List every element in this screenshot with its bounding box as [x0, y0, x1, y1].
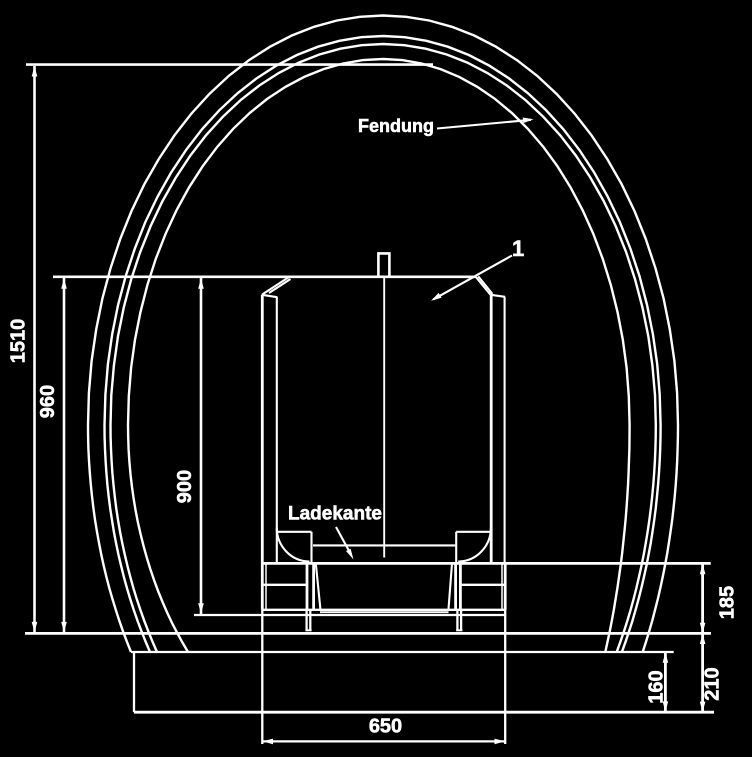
svg-text:1510: 1510	[8, 319, 30, 364]
svg-text:650: 650	[369, 716, 402, 738]
svg-text:1: 1	[512, 236, 524, 261]
svg-text:960: 960	[37, 385, 59, 418]
svg-text:160: 160	[646, 670, 668, 703]
svg-text:900: 900	[174, 470, 196, 503]
svg-text:210: 210	[702, 667, 724, 700]
svg-text:185: 185	[717, 586, 739, 619]
svg-text:Ladekante: Ladekante	[288, 504, 382, 525]
svg-text:Fendung: Fendung	[358, 116, 434, 136]
